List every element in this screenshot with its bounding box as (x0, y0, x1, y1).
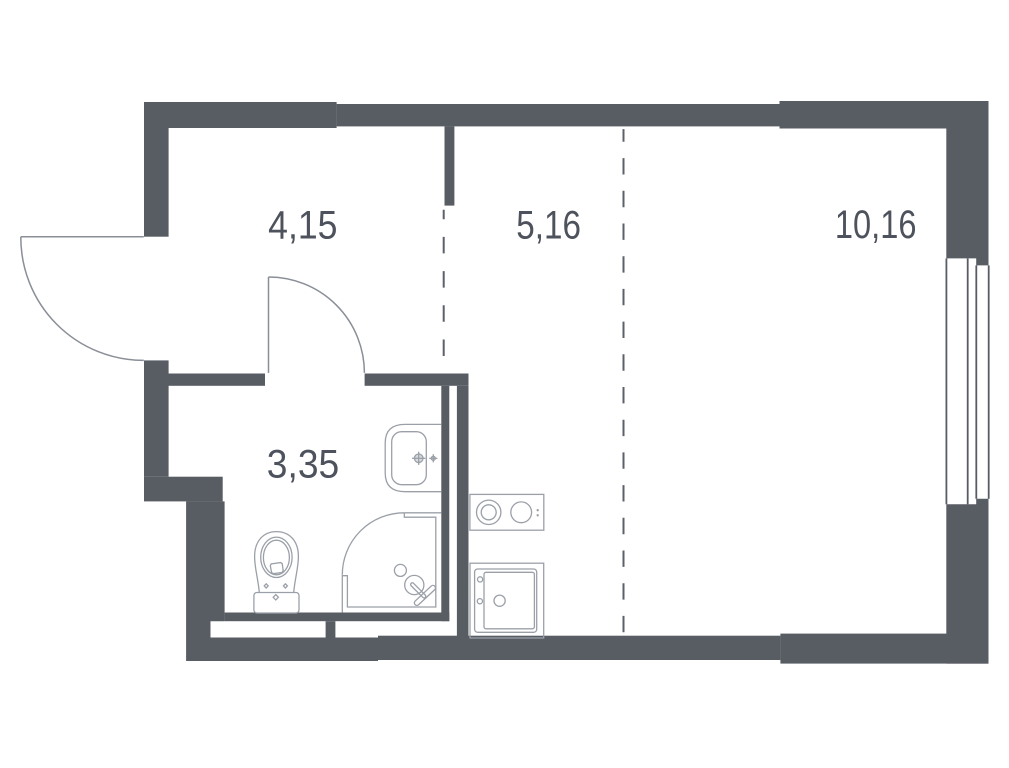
svg-text:10,16: 10,16 (835, 202, 917, 247)
svg-text:3,35: 3,35 (267, 442, 339, 487)
svg-text:5,16: 5,16 (516, 202, 581, 247)
svg-text:4,15: 4,15 (268, 203, 337, 247)
